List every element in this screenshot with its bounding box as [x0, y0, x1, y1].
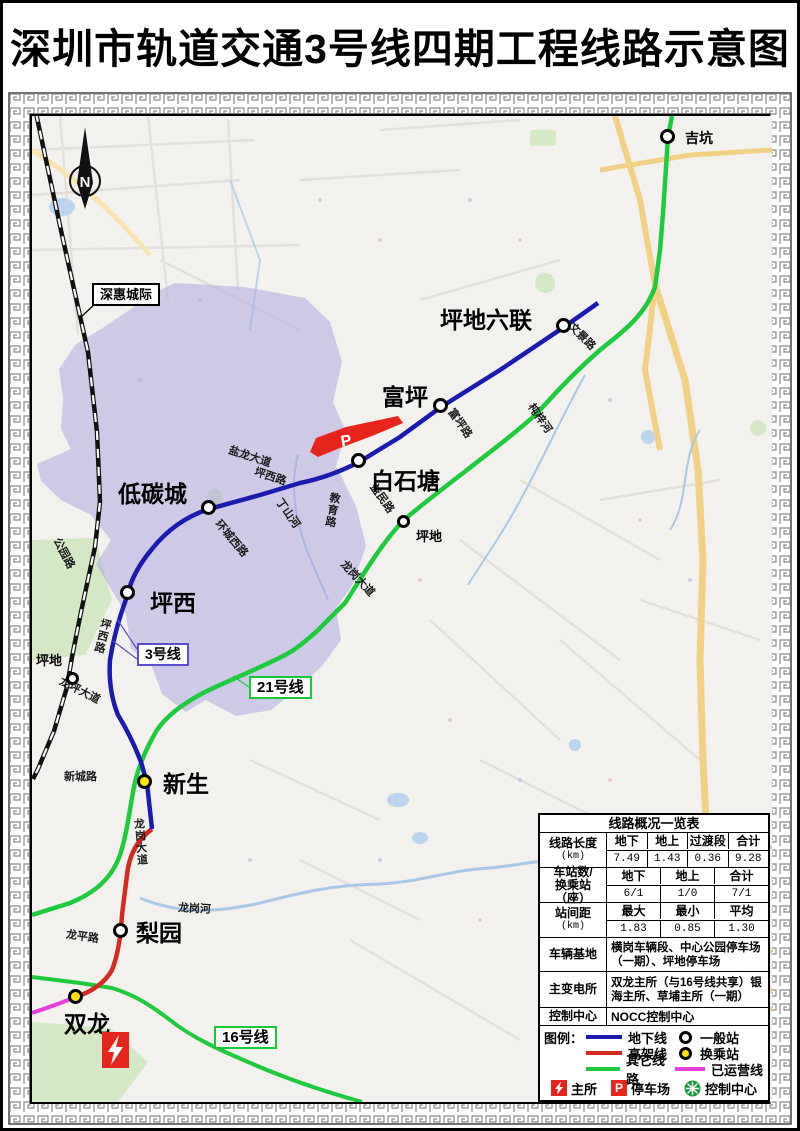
other-line-swatch	[586, 1067, 620, 1071]
length-header: 过渡段	[688, 833, 729, 849]
callout-line-3: 3号线	[137, 643, 189, 666]
station-dot-fuping	[433, 398, 448, 413]
spacing-header: 最大	[607, 903, 661, 919]
station-dot-shuanglong	[68, 989, 83, 1004]
line-overview-table: 线路概况一览表 线路长度 (km) 地下 地上 过渡段 合计	[538, 813, 770, 1102]
station-dot-xinsheng	[137, 774, 152, 789]
page-title: 深圳市轨道交通3号线四期工程线路示意图	[3, 3, 797, 93]
station-label-pingdi-rail: 坪地	[36, 650, 62, 669]
spacing-label: 站间距	[555, 907, 591, 920]
row-label-depot: 车辆基地	[540, 938, 607, 971]
operating-line-swatch	[675, 1067, 705, 1071]
north-compass: N	[65, 125, 105, 222]
station-label-jikeng: 吉坑	[685, 128, 713, 148]
legend: 图例： 地下线 一般站 高架线 换乘站	[540, 1026, 768, 1100]
station-label-xinsheng: 新生	[163, 765, 209, 799]
legend-parking-p: P	[615, 1080, 623, 1096]
legend-control-center-label: 控制中心	[705, 1079, 757, 1098]
station-label-pingdi-line21: 坪地	[416, 526, 442, 545]
underground-line-swatch	[586, 1035, 622, 1039]
stations-value: 7/1	[715, 886, 768, 902]
normal-station-icon	[679, 1031, 692, 1044]
length-value: 1.43	[648, 851, 689, 867]
compass-n-label: N	[80, 174, 91, 191]
station-dot-liyuan	[113, 923, 128, 938]
stations-label: 车站数/	[553, 866, 592, 879]
row-label-stations: 车站数/ 换乘站（座）	[540, 868, 607, 902]
control-value: NOCC控制中心	[607, 1008, 768, 1025]
station-label-liyuan: 梨园	[136, 914, 182, 948]
row-label-control: 控制中心	[540, 1008, 607, 1025]
legend-operating-label: 已运营线	[711, 1060, 763, 1079]
spacing-unit: (km)	[561, 920, 585, 933]
stations-label2: 换乘站（座）	[540, 879, 606, 905]
spacing-value: 1.83	[607, 921, 661, 937]
legend-title: 图例：	[544, 1028, 586, 1047]
map-canvas: P N	[32, 116, 772, 1102]
length-value: 7.49	[607, 851, 648, 867]
legend-control-center-icon	[684, 1080, 701, 1097]
spacing-value: 1.30	[715, 921, 768, 937]
spacing-header: 最小	[661, 903, 715, 919]
station-label-pingdiliulian: 坪地六联	[440, 301, 532, 335]
substation-value: 双龙主所（与16号线共享）银海主所、草埔主所（一期）	[607, 972, 768, 1007]
station-label-fuping: 富坪	[382, 378, 428, 412]
substation-icon	[102, 1032, 129, 1068]
legend-substation-label: 主所	[571, 1079, 597, 1098]
legend-substation-icon	[551, 1080, 567, 1096]
spacing-value: 0.85	[661, 921, 715, 937]
stations-value: 6/1	[607, 886, 661, 902]
road-label-xinchenglu: 新城路	[64, 768, 97, 784]
row-label-length: 线路长度 (km)	[540, 833, 607, 867]
length-header: 地下	[607, 833, 648, 849]
river-label-longganghe: 龙岗河	[178, 899, 212, 917]
decorative-frame: P N	[8, 92, 792, 1125]
length-label: 线路长度	[549, 837, 597, 850]
depot-value: 横岗车辆段、中心公园停车场（一期）、坪地停车场	[607, 938, 768, 971]
station-label-pingxi: 坪西	[150, 584, 196, 618]
legend-parking-icon: P	[611, 1080, 627, 1096]
length-value: 9.28	[729, 851, 769, 867]
station-dot-pingdiliulian	[556, 318, 571, 333]
transfer-station-icon	[679, 1047, 692, 1060]
station-dot-pingdi-line21	[397, 515, 410, 528]
spacing-header: 平均	[715, 903, 768, 919]
page: 深圳市轨道交通3号线四期工程线路示意图	[0, 0, 800, 1131]
callout-line-21: 21号线	[249, 676, 312, 699]
stations-header: 地下	[607, 868, 661, 884]
stations-header: 合计	[715, 868, 768, 884]
legend-parking-label: 停车场	[631, 1079, 670, 1098]
row-label-spacing: 站间距 (km)	[540, 903, 607, 937]
length-header: 地上	[648, 833, 689, 849]
stations-value: 1/0	[661, 886, 715, 902]
lightning-bolt-icon	[108, 1035, 123, 1065]
station-dot-pingdi-rail	[66, 672, 79, 685]
length-header: 合计	[729, 833, 769, 849]
length-unit: (km)	[561, 850, 585, 863]
length-value: 0.36	[688, 851, 729, 867]
row-label-substation: 主变电所	[540, 972, 607, 1007]
callout-shenhui-intercity: 深惠城际	[92, 283, 160, 306]
station-dot-baishitang	[351, 453, 366, 468]
station-dot-ditancheng	[201, 500, 216, 515]
callout-line-16: 16号线	[214, 1026, 277, 1049]
table-title: 线路概况一览表	[540, 815, 768, 833]
station-label-baishitang: 白石塘	[371, 462, 440, 496]
stations-header: 地上	[661, 868, 715, 884]
station-dot-jikeng	[660, 129, 675, 144]
station-dot-pingxi	[120, 585, 135, 600]
station-label-ditancheng: 低碳城	[118, 475, 187, 509]
